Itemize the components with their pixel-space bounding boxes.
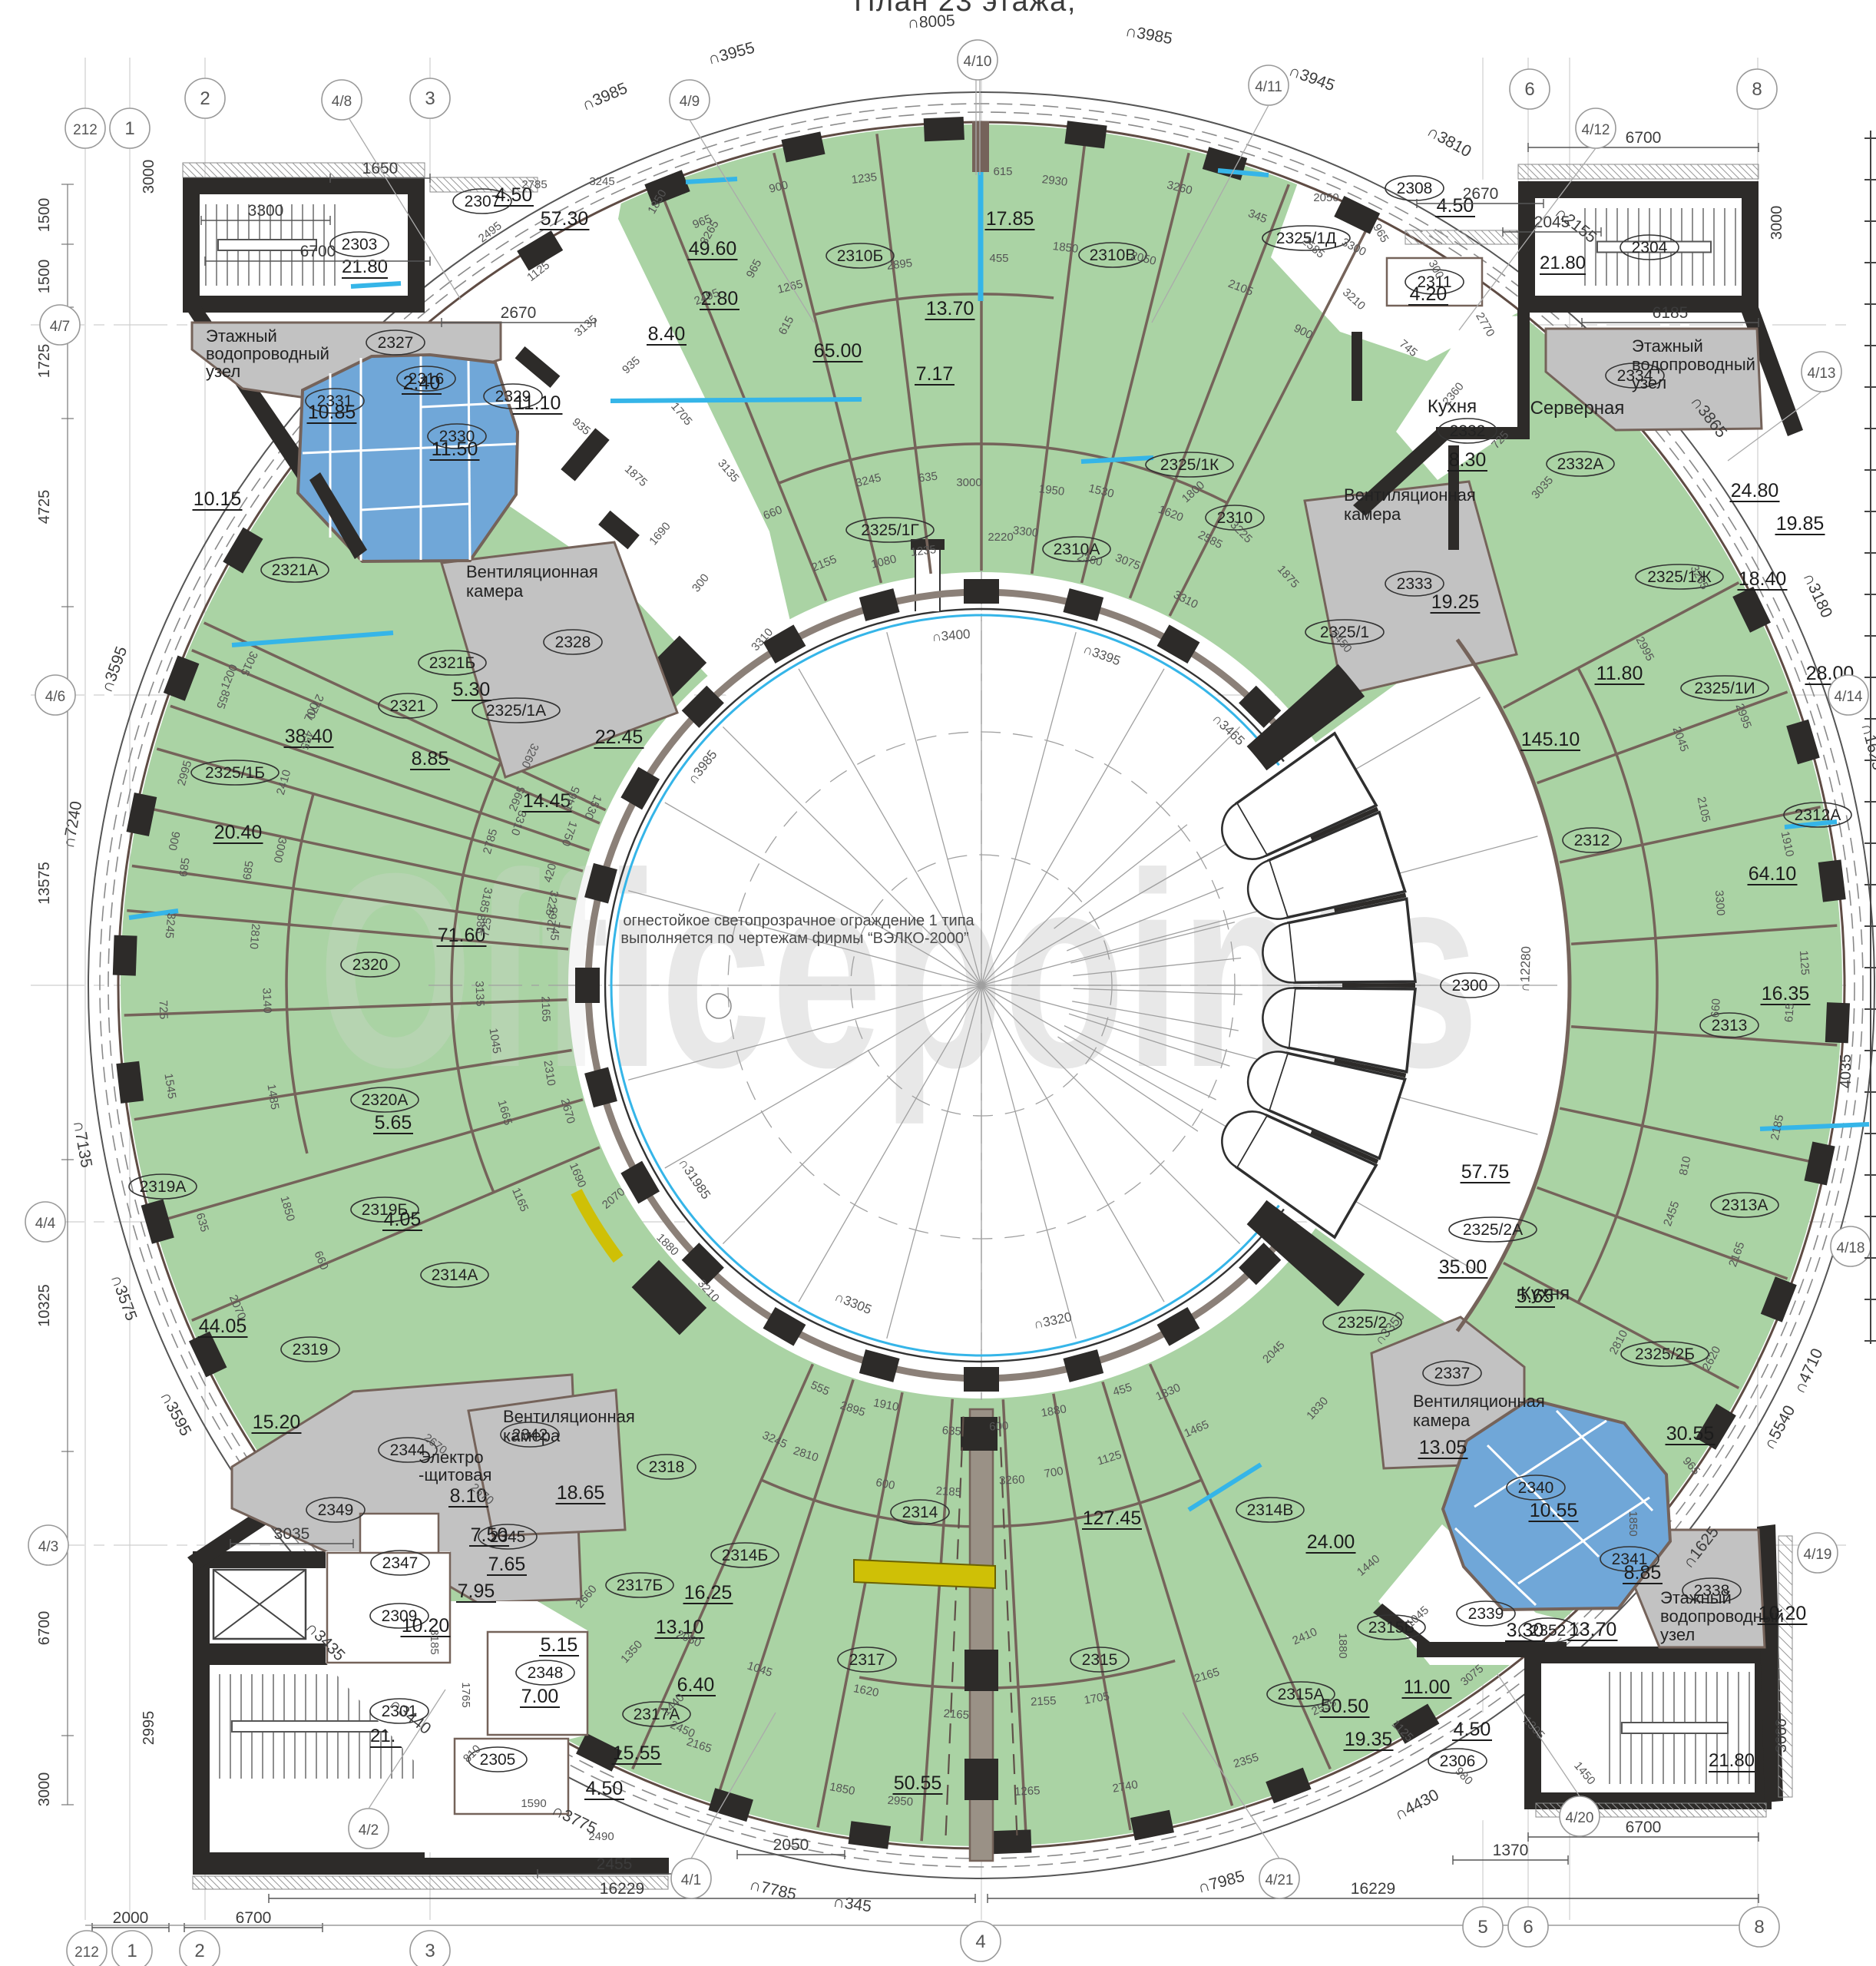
svg-text:2325/1К: 2325/1К (1160, 456, 1219, 474)
svg-text:5.65: 5.65 (1517, 1286, 1554, 1307)
svg-text:2314Б: 2314Б (722, 1547, 769, 1564)
svg-text:5.15: 5.15 (541, 1634, 578, 1656)
svg-text:7.50: 7.50 (471, 1524, 508, 1546)
svg-text:2319А: 2319А (140, 1178, 187, 1196)
svg-text:8: 8 (1754, 1917, 1764, 1938)
svg-text:2670: 2670 (1463, 185, 1499, 203)
svg-text:2318: 2318 (649, 1458, 685, 1476)
svg-text:13575: 13575 (36, 862, 53, 905)
svg-text:8.85: 8.85 (1624, 1562, 1662, 1584)
svg-text:4/3: 4/3 (38, 1539, 58, 1555)
svg-text:выполняется по чертежам фирмы: выполняется по чертежам фирмы “ВЭЛКО-200… (620, 930, 968, 947)
svg-text:18.65: 18.65 (557, 1482, 605, 1504)
svg-text:6185: 6185 (1653, 304, 1689, 322)
svg-text:212: 212 (74, 1944, 99, 1961)
svg-text:5: 5 (1477, 1917, 1487, 1938)
svg-text:3000: 3000 (1768, 206, 1785, 240)
svg-text:4/10: 4/10 (964, 54, 992, 70)
svg-text:8.40: 8.40 (648, 323, 686, 345)
svg-text:2185: 2185 (935, 1484, 961, 1499)
svg-text:725: 725 (157, 1000, 170, 1020)
svg-text:2.40: 2.40 (403, 372, 441, 394)
svg-text:13.70: 13.70 (926, 298, 974, 319)
svg-text:2050: 2050 (773, 1836, 809, 1854)
svg-text:10325: 10325 (36, 1284, 53, 1327)
svg-text:127.45: 127.45 (1083, 1508, 1141, 1529)
svg-text:1880: 1880 (1336, 1633, 1349, 1658)
svg-text:камера: камера (1413, 1411, 1471, 1430)
svg-text:1725: 1725 (36, 344, 53, 379)
svg-text:6700: 6700 (236, 1909, 272, 1927)
svg-text:2303: 2303 (342, 236, 378, 253)
svg-text:4725: 4725 (36, 490, 53, 525)
svg-text:2327: 2327 (378, 334, 414, 352)
svg-text:1765: 1765 (459, 1682, 472, 1707)
svg-text:3300: 3300 (1712, 889, 1727, 915)
svg-text:10.20: 10.20 (1759, 1603, 1807, 1624)
svg-text:2155: 2155 (1031, 1694, 1057, 1709)
svg-text:6.40: 6.40 (677, 1674, 715, 1696)
svg-text:64.10: 64.10 (1749, 863, 1797, 885)
svg-text:1500: 1500 (36, 260, 53, 294)
svg-text:455: 455 (989, 252, 1008, 265)
svg-text:21.80: 21.80 (1709, 1750, 1755, 1771)
svg-text:4/20: 4/20 (1566, 1810, 1594, 1826)
svg-text:2332А: 2332А (1557, 455, 1604, 473)
svg-text:2325/1И: 2325/1И (1694, 680, 1755, 697)
svg-text:13.05: 13.05 (1419, 1437, 1467, 1458)
svg-text:2455: 2455 (597, 1855, 633, 1873)
svg-text:1125: 1125 (1797, 950, 1811, 975)
svg-text:50.55: 50.55 (894, 1772, 942, 1794)
svg-text:3140: 3140 (260, 988, 273, 1014)
svg-text:2304: 2304 (1632, 239, 1668, 257)
svg-text:4/12: 4/12 (1582, 122, 1610, 138)
svg-text:2325/2А: 2325/2А (1463, 1221, 1523, 1239)
svg-text:10.15: 10.15 (194, 488, 242, 510)
svg-text:Этажный: Этажный (206, 326, 277, 346)
svg-text:4.50: 4.50 (586, 1778, 624, 1799)
svg-text:2319: 2319 (293, 1341, 329, 1359)
svg-text:1: 1 (127, 1941, 137, 1961)
svg-text:11.80: 11.80 (1596, 663, 1643, 684)
svg-text:2328: 2328 (555, 634, 591, 651)
svg-text:Вентиляционная: Вентиляционная (1344, 485, 1476, 505)
svg-text:4.20: 4.20 (1410, 283, 1448, 305)
svg-text:4/13: 4/13 (1808, 366, 1836, 382)
svg-text:2050: 2050 (1313, 191, 1338, 204)
svg-text:2305: 2305 (480, 1751, 516, 1769)
svg-text:21.80: 21.80 (1540, 253, 1586, 273)
svg-text:11.10: 11.10 (514, 392, 561, 414)
svg-text:6700: 6700 (300, 243, 336, 260)
svg-text:6700: 6700 (1626, 1819, 1662, 1836)
svg-text:30.55: 30.55 (1666, 1423, 1715, 1445)
svg-text:2332: 2332 (1450, 422, 1486, 440)
svg-text:8.30: 8.30 (1449, 449, 1487, 471)
svg-text:4/7: 4/7 (50, 319, 70, 335)
svg-text:6: 6 (1523, 1917, 1533, 1938)
svg-text:4/18: 4/18 (1837, 1240, 1865, 1256)
svg-text:24.80: 24.80 (1731, 480, 1779, 501)
svg-text:2321А: 2321А (272, 561, 319, 579)
svg-text:Этажный: Этажный (1632, 336, 1703, 356)
svg-text:3185: 3185 (428, 1629, 441, 1654)
svg-text:Серверная: Серверная (1530, 398, 1625, 419)
svg-text:2: 2 (200, 88, 210, 109)
svg-text:2670: 2670 (501, 304, 537, 322)
svg-text:4035: 4035 (1838, 1054, 1854, 1089)
svg-text:57.30: 57.30 (541, 208, 589, 230)
svg-text:2785: 2785 (521, 178, 547, 191)
svg-text:2995: 2995 (141, 1711, 157, 1746)
svg-text:2810: 2810 (247, 923, 263, 950)
svg-text:1590: 1590 (521, 1797, 546, 1810)
svg-text:3: 3 (425, 1941, 435, 1961)
svg-text:2349: 2349 (318, 1501, 354, 1519)
svg-text:2310Б: 2310Б (837, 247, 884, 265)
svg-text:6: 6 (1524, 79, 1534, 100)
svg-text:Этажный: Этажный (1660, 1588, 1732, 1607)
svg-text:2045: 2045 (1534, 213, 1570, 231)
svg-text:3000: 3000 (1773, 1719, 1790, 1753)
svg-text:2: 2 (194, 1941, 204, 1961)
svg-text:2333: 2333 (1397, 575, 1433, 593)
svg-text:2325/1Б: 2325/1Б (205, 764, 265, 782)
svg-text:3035: 3035 (274, 1525, 310, 1543)
svg-text:15.20: 15.20 (253, 1412, 301, 1433)
svg-text:7.17: 7.17 (916, 363, 954, 385)
svg-text:65.00: 65.00 (814, 340, 862, 362)
svg-text:19.35: 19.35 (1345, 1729, 1393, 1750)
svg-text:615: 615 (1782, 1003, 1797, 1023)
svg-text:10.20: 10.20 (402, 1615, 450, 1637)
svg-text:Электро: Электро (419, 1448, 484, 1467)
svg-text:2000: 2000 (113, 1909, 149, 1927)
svg-text:49.60: 49.60 (689, 238, 737, 260)
svg-text:7.00: 7.00 (521, 1686, 559, 1707)
svg-text:2220: 2220 (988, 531, 1013, 544)
svg-text:4/4: 4/4 (35, 1216, 56, 1232)
svg-text:2313А: 2313А (1722, 1196, 1768, 1214)
svg-text:узел: узел (1660, 1625, 1695, 1644)
svg-text:Вентиляционная: Вентиляционная (503, 1407, 635, 1426)
svg-text:4/21: 4/21 (1266, 1872, 1294, 1888)
svg-text:4/8: 4/8 (332, 94, 352, 110)
svg-text:2321: 2321 (390, 697, 426, 715)
svg-text:2315: 2315 (1082, 1651, 1118, 1669)
svg-text:2950: 2950 (887, 1794, 913, 1809)
svg-text:2339: 2339 (1468, 1605, 1504, 1623)
svg-text:145.10: 145.10 (1521, 729, 1580, 750)
svg-text:3000: 3000 (141, 160, 157, 194)
svg-text:11.00: 11.00 (1404, 1676, 1451, 1698)
svg-text:5.65: 5.65 (375, 1112, 412, 1134)
svg-text:21.80: 21.80 (342, 257, 388, 277)
svg-text:11.50: 11.50 (432, 439, 478, 460)
svg-text:2325/2: 2325/2 (1338, 1314, 1387, 1332)
svg-text:2314В: 2314В (1247, 1501, 1294, 1519)
svg-text:Вентиляционная: Вентиляционная (1413, 1392, 1545, 1411)
svg-text:3245: 3245 (589, 175, 614, 188)
svg-text:6700: 6700 (1626, 129, 1662, 147)
svg-text:3300: 3300 (248, 202, 284, 220)
svg-text:2312: 2312 (1574, 832, 1610, 849)
svg-text:3135: 3135 (472, 981, 486, 1007)
svg-text:16229: 16229 (1351, 1880, 1395, 1898)
svg-text:3260: 3260 (999, 1473, 1025, 1488)
svg-text:2315А: 2315А (1278, 1686, 1325, 1703)
svg-text:3: 3 (425, 88, 435, 109)
svg-text:4/9: 4/9 (680, 94, 700, 110)
svg-text:узел: узел (1632, 373, 1666, 392)
svg-text:2325/1А: 2325/1А (486, 702, 546, 720)
svg-text:2320: 2320 (352, 956, 389, 974)
svg-text:685: 685 (177, 857, 192, 878)
svg-text:19.85: 19.85 (1776, 513, 1825, 535)
svg-text:Вентиляционная: Вентиляционная (466, 562, 598, 581)
svg-text:17.85: 17.85 (986, 208, 1034, 230)
svg-text:∩12280: ∩12280 (1517, 946, 1534, 992)
svg-text:685: 685 (240, 860, 256, 881)
svg-text:745: 745 (548, 921, 562, 941)
svg-text:2348: 2348 (528, 1664, 564, 1682)
svg-text:5.30: 5.30 (453, 679, 491, 700)
svg-text:2321Б: 2321Б (429, 654, 476, 672)
svg-text:1370: 1370 (1493, 1842, 1529, 1859)
svg-text:15.55: 15.55 (613, 1743, 661, 1764)
svg-text:20.40: 20.40 (214, 822, 263, 843)
svg-text:8: 8 (1752, 79, 1762, 100)
svg-text:4/2: 4/2 (359, 1822, 379, 1839)
svg-text:35.00: 35.00 (1439, 1256, 1487, 1278)
svg-text:615: 615 (993, 165, 1012, 178)
svg-text:-щитовая: -щитовая (419, 1465, 491, 1484)
svg-text:4/1: 4/1 (681, 1872, 701, 1888)
svg-text:водопроводный: водопроводный (1632, 355, 1755, 374)
svg-text:6700: 6700 (36, 1611, 53, 1646)
svg-text:10.85: 10.85 (308, 402, 356, 423)
svg-text:16.35: 16.35 (1762, 983, 1810, 1005)
svg-text:1265: 1265 (1014, 1784, 1041, 1799)
svg-text:885: 885 (473, 914, 488, 934)
svg-text:4/11: 4/11 (1255, 79, 1282, 95)
svg-text:635: 635 (941, 1424, 961, 1438)
svg-text:2320А: 2320А (362, 1091, 409, 1109)
svg-text:635: 635 (918, 470, 938, 485)
svg-text:18.40: 18.40 (1739, 568, 1787, 590)
svg-text:16229: 16229 (600, 1880, 644, 1898)
svg-text:3000: 3000 (36, 1772, 53, 1807)
svg-text:2314: 2314 (902, 1504, 938, 1521)
svg-text:1: 1 (124, 118, 134, 139)
svg-text:7.65: 7.65 (488, 1554, 526, 1575)
svg-text:водопроводный: водопроводный (206, 344, 329, 363)
svg-text:212: 212 (73, 122, 98, 138)
svg-text:2308: 2308 (1397, 180, 1433, 197)
svg-text:3245: 3245 (163, 912, 178, 939)
svg-text:16.25: 16.25 (684, 1582, 733, 1604)
svg-text:4.50: 4.50 (1454, 1719, 1491, 1740)
svg-text:660: 660 (1709, 998, 1723, 1018)
svg-text:2325/1Г: 2325/1Г (861, 521, 919, 539)
svg-text:узел: узел (206, 362, 240, 381)
svg-text:600: 600 (989, 1419, 1009, 1433)
svg-text:камера: камера (1344, 505, 1401, 524)
svg-text:2312А: 2312А (1795, 806, 1841, 824)
svg-text:камера: камера (466, 581, 524, 601)
svg-text:2300: 2300 (1452, 977, 1488, 995)
svg-text:2314А: 2314А (432, 1266, 478, 1284)
svg-text:4/14: 4/14 (1835, 689, 1863, 705)
svg-text:1850: 1850 (1626, 1511, 1639, 1536)
svg-text:3.30: 3.30 (1507, 1620, 1544, 1641)
svg-text:2165: 2165 (943, 1707, 969, 1722)
svg-text:камера: камера (503, 1426, 561, 1445)
svg-text:2337: 2337 (1434, 1365, 1471, 1382)
svg-text:4/19: 4/19 (1804, 1547, 1832, 1563)
svg-text:4.05: 4.05 (384, 1209, 422, 1230)
svg-text:10.55: 10.55 (1530, 1500, 1578, 1521)
svg-text:План 23 этажа;: План 23 этажа; (854, 0, 1077, 18)
svg-text:2325/2Б: 2325/2Б (1635, 1345, 1695, 1363)
svg-text:4/6: 4/6 (45, 689, 65, 705)
svg-text:2347: 2347 (382, 1554, 419, 1572)
svg-text:2165: 2165 (538, 996, 552, 1022)
svg-text:2317Б: 2317Б (617, 1577, 663, 1594)
svg-text:24.00: 24.00 (1307, 1531, 1355, 1553)
svg-text:2313: 2313 (1712, 1017, 1748, 1034)
svg-text:13.70: 13.70 (1569, 1619, 1617, 1640)
svg-text:8.85: 8.85 (412, 748, 449, 770)
svg-text:огнестойкое светопрозрачное ог: огнестойкое светопрозрачное ограждение 1… (623, 912, 974, 929)
svg-text:2317: 2317 (849, 1651, 885, 1669)
svg-text:22.45: 22.45 (595, 726, 644, 748)
svg-text:2340: 2340 (1518, 1479, 1554, 1497)
svg-text:57.75: 57.75 (1461, 1161, 1510, 1183)
svg-text:2306: 2306 (1440, 1753, 1476, 1770)
svg-text:19.25: 19.25 (1431, 591, 1480, 613)
svg-text:4: 4 (975, 1931, 985, 1952)
svg-text:3000: 3000 (956, 476, 981, 489)
svg-text:1500: 1500 (36, 198, 53, 233)
svg-text:7.95: 7.95 (458, 1580, 495, 1602)
